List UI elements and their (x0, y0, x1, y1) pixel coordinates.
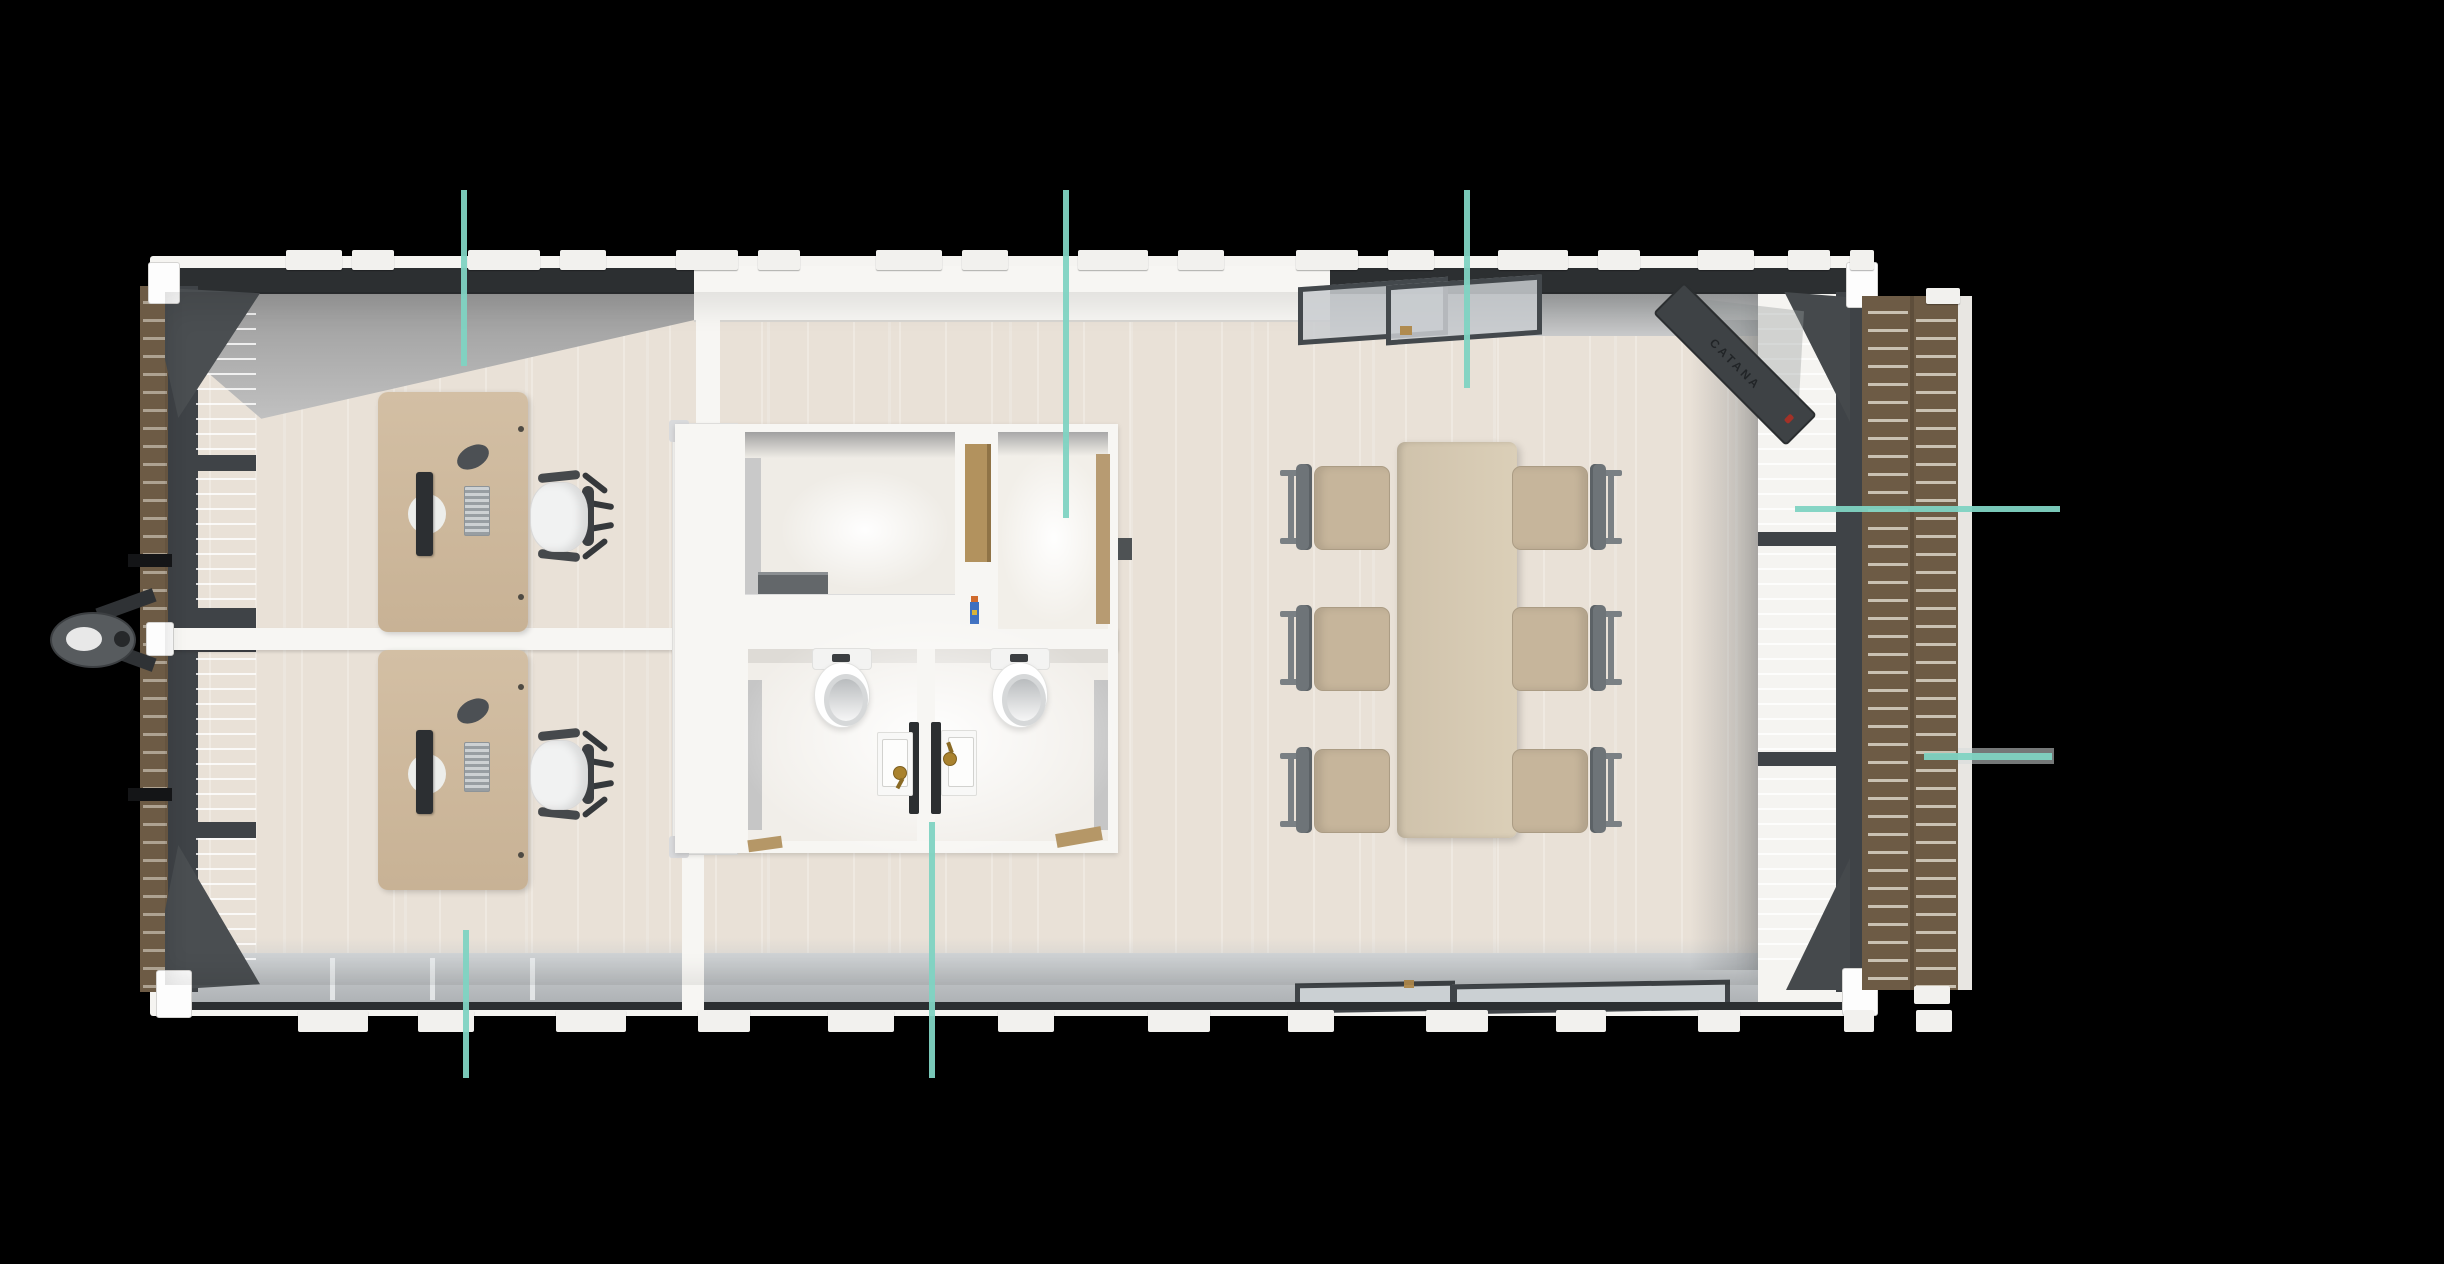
desk (378, 650, 528, 890)
roof-tab (560, 250, 606, 270)
office-lower-workstation (378, 650, 618, 894)
meeting-chair (1512, 603, 1622, 693)
door-logo-mark (1784, 413, 1795, 424)
roof-tab (1598, 250, 1640, 270)
roof-tab (1916, 1010, 1952, 1032)
roof-tab (286, 250, 342, 270)
roof-tab (1498, 250, 1568, 270)
fold-bracket (128, 788, 172, 801)
toilet (810, 648, 872, 728)
side-deck (1862, 296, 1962, 990)
roof-tab (758, 250, 800, 270)
deck-edge-board (1958, 296, 1972, 990)
bottom-window-post (330, 958, 335, 1000)
roof-tab (1556, 1010, 1606, 1032)
roof-tab (1426, 1010, 1488, 1032)
keyboard (464, 742, 490, 792)
roof-tab (1388, 250, 1434, 270)
roof-tab (468, 250, 540, 270)
restroom-cabinet (965, 444, 991, 562)
window-hinge (1400, 326, 1412, 335)
floorplan-3d-viewport[interactable]: CATANA (0, 0, 2444, 1264)
stall-side-shade (1094, 680, 1108, 830)
roof-tab (1288, 1010, 1334, 1032)
roof-tab (1296, 250, 1358, 270)
keyboard (464, 486, 490, 536)
roof-tab (828, 1010, 894, 1032)
top-wall-glazing-left (165, 268, 700, 294)
roof-tab (998, 1010, 1054, 1032)
divider-wall-bracket (146, 622, 174, 656)
window-hinge (1404, 980, 1414, 988)
meeting-chair (1512, 745, 1622, 835)
meeting-table (1397, 442, 1517, 838)
callout-glass-wall-right[interactable] (1795, 506, 2060, 512)
roof-tab (352, 250, 394, 270)
roof-tab (1788, 250, 1830, 270)
roof-tab (1698, 1010, 1740, 1032)
right-glass-mullion (1758, 532, 1836, 546)
office-upper-workstation (378, 392, 618, 636)
meeting-chair (1280, 603, 1390, 693)
desk-grommet (518, 426, 524, 432)
callout-restroom-bottom[interactable] (929, 822, 935, 1078)
stall-side-shade (748, 680, 762, 830)
desk-grommet (518, 684, 524, 690)
deck-bracket (1926, 288, 1960, 304)
office-chair (526, 466, 610, 566)
roof-tab (962, 250, 1008, 270)
roof-tab (1078, 250, 1148, 270)
trailer-hitch-coupler (50, 612, 136, 668)
roof-tab (1698, 250, 1754, 270)
monitor (416, 730, 433, 814)
desk (378, 392, 528, 632)
roof-tab (676, 250, 738, 270)
callout-meeting-top[interactable] (1464, 190, 1470, 388)
callout-office-top[interactable] (461, 190, 467, 366)
roof-tab (1178, 250, 1224, 270)
left-glass-mullion (196, 455, 256, 471)
office-chair (526, 724, 610, 824)
roof-tab (876, 250, 942, 270)
roof-tab (298, 1010, 368, 1032)
roof-tab (1148, 1010, 1210, 1032)
meeting-chair (1280, 462, 1390, 552)
roof-tab (698, 1010, 750, 1032)
meeting-chair (1512, 462, 1622, 552)
shower-bench (1096, 454, 1110, 624)
hallway-wall-bottom (682, 850, 704, 1010)
toilet (988, 648, 1050, 728)
corner-bracket (156, 970, 192, 1018)
roof-tab (556, 1010, 626, 1032)
callout-office-bottom[interactable] (463, 930, 469, 1078)
monitor (416, 472, 433, 556)
roof-tab (1844, 1010, 1874, 1032)
bottom-window-post (530, 958, 535, 1000)
shower-room-floor (998, 432, 1108, 629)
hallway-wall-top (696, 268, 720, 428)
top-wall-middle (694, 266, 1334, 322)
fold-bracket (128, 554, 172, 567)
right-glass-mullion (1758, 752, 1836, 766)
sink-splash-panel (931, 722, 941, 814)
meeting-chair (1280, 745, 1390, 835)
exterior-utility-connector (1118, 538, 1132, 560)
desk-grommet (518, 594, 524, 600)
faucet-brass-icon (943, 752, 957, 766)
utility-room-wall-shade (745, 432, 955, 458)
callout-restroom-top[interactable] (1063, 190, 1069, 518)
bottom-window-post (430, 958, 435, 1000)
callout-deck-right[interactable] (1924, 753, 2052, 760)
roof-tab (1850, 250, 1874, 270)
deck-bracket (1914, 986, 1950, 1004)
right-floor-shade (1690, 320, 1758, 970)
supply-bottle-label-icon (972, 610, 977, 615)
left-glass-mullion (196, 822, 256, 838)
desk-grommet (518, 852, 524, 858)
shower-room-wall-shade (998, 432, 1108, 456)
corner-bracket (148, 262, 180, 304)
utility-counter (745, 594, 955, 630)
bottom-wall-edge (165, 1002, 1845, 1010)
